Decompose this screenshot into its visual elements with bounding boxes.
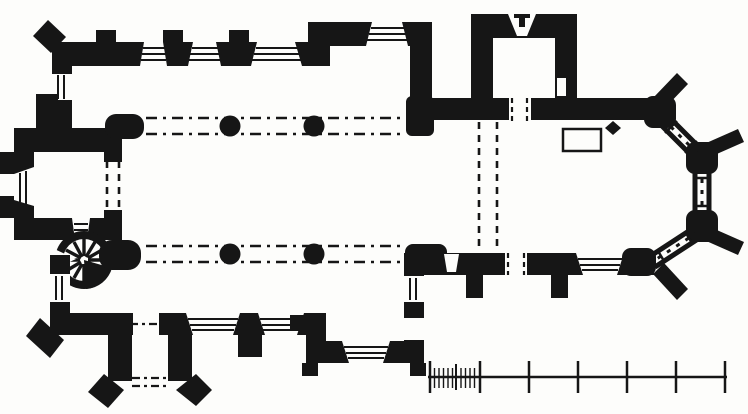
nave-arcades: Nave arcades drawn dashed with two circu… bbox=[99, 96, 447, 275]
diagonal-buttress bbox=[704, 129, 744, 157]
porch-east-wall bbox=[168, 335, 192, 381]
church-floor-plan: North aisle: three splayed windows, thre… bbox=[0, 0, 748, 414]
east-respond bbox=[406, 96, 434, 136]
buttress bbox=[466, 275, 483, 298]
window bbox=[140, 42, 167, 66]
vestry-doorway bbox=[509, 98, 531, 122]
chapel-east-wall bbox=[404, 253, 424, 363]
altar-plinth bbox=[563, 129, 601, 151]
arcade-pier bbox=[304, 244, 325, 265]
window bbox=[576, 253, 624, 275]
south-chapel: South chapel projecting beyond the aisle… bbox=[290, 253, 426, 376]
corner-pier bbox=[622, 248, 656, 276]
window bbox=[186, 313, 240, 335]
west-buttress bbox=[0, 152, 14, 174]
vestry-interior bbox=[493, 38, 555, 98]
buttress bbox=[551, 275, 568, 298]
floor-plan-drawing: North aisle: three splayed windows, thre… bbox=[0, 0, 748, 414]
window bbox=[188, 42, 221, 66]
tower-interior bbox=[34, 152, 104, 218]
south-porch: South porch with side walls, outer doorw… bbox=[88, 335, 212, 408]
altar: Altar plinth outline with small lozenge … bbox=[563, 121, 621, 151]
porch-west-wall bbox=[108, 335, 132, 381]
arcade-pier bbox=[220, 116, 241, 137]
arcade-pier bbox=[220, 244, 241, 265]
arcade-pier bbox=[304, 116, 325, 137]
chapel-east-wall bbox=[410, 22, 432, 100]
lozenge-mark bbox=[605, 121, 621, 135]
west-respond bbox=[105, 114, 144, 139]
south-doorway bbox=[505, 253, 527, 275]
buttress bbox=[229, 30, 249, 44]
south-doorway bbox=[130, 313, 162, 335]
north-chapel: North chapel projecting beyond the aisle… bbox=[308, 22, 432, 100]
window bbox=[251, 42, 302, 66]
wall-niche bbox=[557, 78, 566, 96]
west-buttress bbox=[0, 196, 14, 218]
west-buttress bbox=[290, 315, 306, 331]
vestry: North vestry with narrow north light, ea… bbox=[471, 14, 577, 122]
window bbox=[50, 274, 70, 302]
buttress bbox=[410, 363, 426, 376]
east-window-opening bbox=[404, 318, 424, 340]
west-respond bbox=[99, 240, 141, 270]
apse-window bbox=[659, 115, 703, 159]
buttress bbox=[238, 335, 262, 357]
window bbox=[404, 276, 424, 302]
diagonal-buttress bbox=[653, 263, 688, 300]
scale-bar: Plain scale bar of six divisions, the fi… bbox=[428, 361, 727, 393]
north-buttress bbox=[36, 94, 58, 128]
buttress bbox=[302, 363, 318, 376]
diagonal-buttress bbox=[704, 227, 744, 255]
buttress bbox=[163, 30, 183, 44]
window bbox=[366, 22, 408, 46]
buttress bbox=[96, 30, 116, 44]
window bbox=[342, 341, 390, 363]
